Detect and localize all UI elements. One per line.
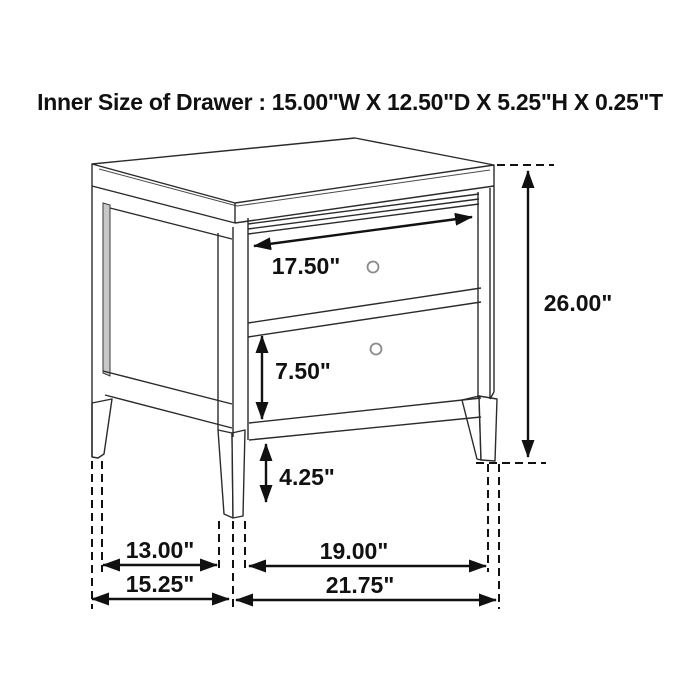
dim-side-leg-inner-span: 13.00" <box>103 537 217 565</box>
dim-front-width: 21.75" <box>236 572 496 600</box>
front-left-leg <box>218 430 245 518</box>
nightstand-drawing <box>92 138 497 518</box>
dim-top-drawer-width: 17.50" <box>254 217 472 279</box>
back-left-leg <box>92 399 112 458</box>
dim-front-leg-inner-span: 19.00" <box>249 538 486 566</box>
dim-label-overall-height: 26.00" <box>544 290 612 316</box>
dim-label-bottom-drawer-height: 7.50" <box>275 358 331 384</box>
panel-corner-stile-shaded <box>103 203 110 376</box>
dim-label-top-drawer-width: 17.50" <box>272 253 340 279</box>
dim-side-depth: 15.25" <box>92 571 229 599</box>
dim-bottom-drawer-height: 7.50" <box>262 336 331 419</box>
dim-leg-clearance: 4.25" <box>266 444 335 502</box>
front-right-leg <box>462 396 497 461</box>
left-side-panel <box>92 186 233 457</box>
bottom-drawer-knob <box>371 344 382 355</box>
dim-label-side-leg-inner-span: 13.00" <box>126 537 194 563</box>
dim-label-front-width: 21.75" <box>326 572 394 598</box>
diagram-svg: Inner Size of Drawer : 15.00"W X 12.50"D… <box>0 0 700 700</box>
furniture-dimension-diagram: Inner Size of Drawer : 15.00"W X 12.50"D… <box>0 0 700 700</box>
dim-label-leg-clearance: 4.25" <box>279 464 335 490</box>
front-frame <box>248 186 494 440</box>
top-drawer-knob <box>368 262 379 273</box>
diagram-title: Inner Size of Drawer : 15.00"W X 12.50"D… <box>37 89 663 115</box>
dim-label-front-leg-inner-span: 19.00" <box>320 538 388 564</box>
dim-label-side-depth: 15.25" <box>126 571 194 597</box>
dim-overall-height: 26.00" <box>528 171 612 457</box>
